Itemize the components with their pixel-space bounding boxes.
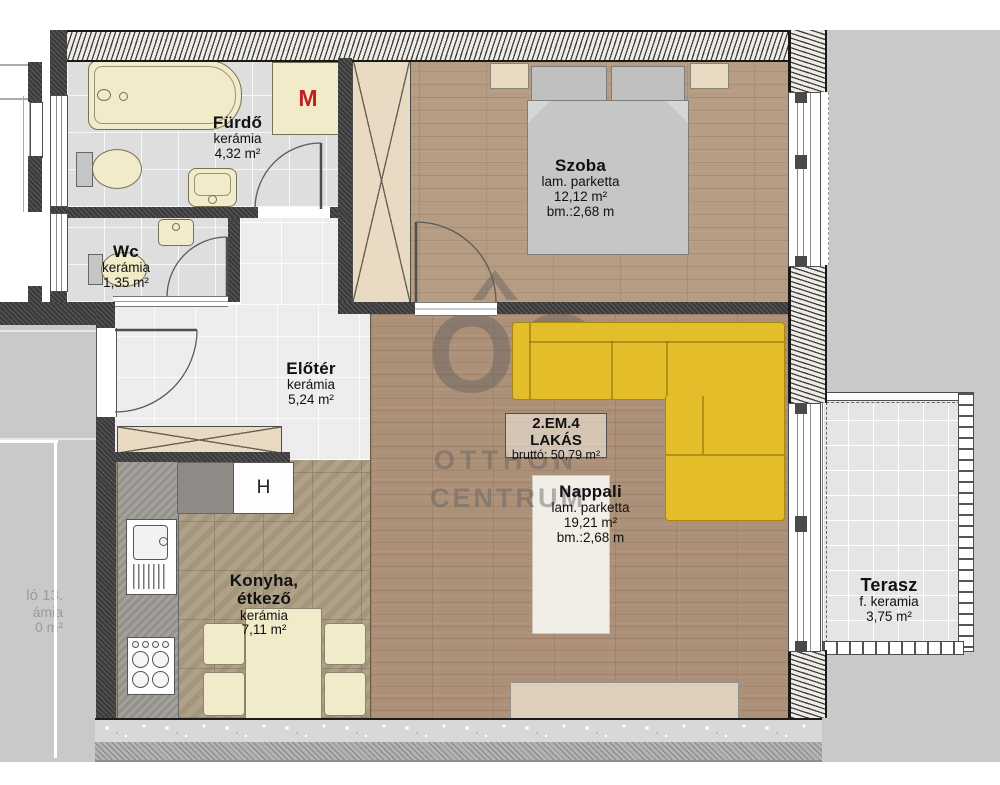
wall-bathroom-bottom [67,207,258,218]
washing-machine-label: M [298,85,317,112]
stove-burner [152,671,169,688]
unit-type: LAKÁS [506,433,606,450]
hall-label: Előtér kerámia 5,24 m² [241,360,381,408]
terrace-bottom-rail [822,641,964,655]
entry-door-opening [96,328,117,417]
wall-bedroom-living-left [338,302,415,314]
exterior-wall-top [52,30,788,62]
room-name: Fürdő [160,114,315,132]
window-frame-joint [795,516,807,532]
room-name: Szoba [508,157,653,175]
stove [127,637,175,695]
room-area: 1,35 m² [66,276,186,291]
bathroom-door-opening [258,207,330,218]
room-name: Terasz [824,576,954,595]
room-floor-type: f. keramia [824,595,954,610]
room-name: Előtér [241,360,381,378]
stove-burner [132,651,149,668]
exterior-wall-right-upper [788,30,827,92]
exterior-wall-bottom-band [95,742,822,762]
room-area: 3,75 m² [824,610,954,625]
wc-sink [158,219,194,246]
wall-bathroom-bottom-stub [330,207,338,218]
unit-gross-area: bruttó: 50,79 m² [506,449,606,463]
wall-bedroom-living-right [497,302,788,314]
window-frame-joint [795,256,807,266]
window-frame-joint [795,93,807,103]
exterior-wall-right-mid [788,265,827,403]
room-name-line2: étkező [189,590,339,608]
sofa-seam [611,341,613,399]
floor-plan: ló 13. ámia 0 m² OC OTTHON CENTRUM [0,0,1000,785]
blanket-fold-left [527,100,551,124]
sideboard [510,682,739,720]
bathroom-window [50,95,68,207]
bedroom-door-threshold [415,302,497,316]
wall-kitchen-left [96,460,116,718]
room-height: bm.:2,68 m [508,205,653,220]
sofa-seam [529,341,784,343]
bed-pillow-right [611,66,685,104]
stove-knob [152,641,159,648]
kitchen-sink-faucet [159,537,168,546]
terrace-sliding-door [788,403,821,652]
terrace-right-railing [958,392,974,652]
wall-wc-right [228,218,240,302]
nightstand-right [690,63,729,89]
window-mullion [803,93,804,266]
bed-pillow-left [531,66,607,104]
kitchen-sink-drainer [133,564,167,589]
bathroom-toilet-tank [76,152,93,187]
neighbor-balcony-edge [0,440,58,443]
nightstand-left [490,63,529,89]
kitchen-sink-unit [126,519,177,595]
wc-threshold [113,296,228,307]
sofa-seam [666,341,668,399]
room-name: Konyha, [189,572,339,590]
sofa-seam [666,454,784,456]
room-area: 12,12 m² [508,190,653,205]
sink-faucet [208,195,217,204]
sofa-main [512,322,785,400]
room-floor-type: kerámia [160,132,315,147]
bedroom-label: Szoba lam. parketta 12,12 m² bm.:2,68 m [508,157,653,219]
window-mullion [56,214,57,291]
room-area: 5,24 m² [241,393,381,408]
neighbor-wall-stub [28,156,42,212]
kitchen-label: Konyha, étkező kerámia 7,11 m² [189,572,339,638]
window-frame-joint [795,404,807,414]
bathroom-sink [188,168,237,207]
stove-knob [162,641,169,648]
neighbor-window [30,102,43,158]
room-name: Wc [66,243,186,261]
dining-chair [203,672,245,716]
neighbor-room-outline [0,330,98,440]
bedroom-window [788,92,821,267]
window-mullion [61,214,62,291]
terrace-top-rail [822,392,968,401]
bathtub-faucet [97,89,111,101]
hall-wardrobe [117,426,282,454]
window-frame-joint [795,155,807,169]
fridge: H [233,462,294,514]
sofa-seam [702,396,704,454]
stove-knob [132,641,139,648]
window-frame-joint [795,641,807,651]
bedroom-wardrobe [352,58,411,303]
room-name: Nappali [518,483,663,501]
exterior-wall-right-lower [788,650,827,718]
dining-chair [324,672,366,716]
room-floor-type: lam. parketta [518,501,663,516]
living-room-label: Nappali lam. parketta 19,21 m² bm.:2,68 … [518,483,663,545]
wc-label: Wc kerámia 1,35 m² [66,243,186,291]
hall-wardrobe-wall [113,452,290,462]
kitchen-counter-top [177,462,235,514]
window-mullion [810,93,811,266]
room-floor-type: kerámia [189,609,339,624]
room-area: 4,32 m² [160,147,315,162]
window-mullion [61,96,62,206]
window-mullion [56,96,57,206]
exterior-wall-bottom [95,718,822,745]
stove-burner [132,671,149,688]
sink-basin [194,173,231,196]
sink-faucet [172,223,180,231]
room-height: bm.:2,68 m [518,531,663,546]
hall-corridor-floor [240,207,338,305]
unit-number: 2.EM.4 [506,416,606,433]
window-mullion [797,93,798,266]
room-area: 19,21 m² [518,516,663,531]
neighbor-wall-stub [28,62,42,102]
sofa-chaise [665,396,785,521]
room-floor-type: lam. parketta [508,175,653,190]
bedroom-window-sill [820,92,829,265]
room-floor-type: kerámia [241,378,381,393]
blanket-fold-right [665,100,689,124]
stove-burner [152,651,169,668]
sofa-seam [529,323,531,399]
wall-hall-left-upper [96,302,115,328]
wall-bathroom-bedroom [338,58,352,302]
unit-info-box: 2.EM.4 LAKÁS bruttó: 50,79 m² [505,413,607,458]
room-area: 7,11 m² [189,623,339,638]
neighbor-balcony-edge [54,443,57,758]
bathtub-drain [119,92,128,101]
bathroom-toilet-bowl [92,149,142,189]
stove-knob [142,641,149,648]
terrace-label: Terasz f. keramia 3,75 m² [824,576,954,625]
room-floor-type: kerámia [66,261,186,276]
fridge-label: H [257,477,271,499]
window-mullion [810,404,811,651]
bathroom-label: Fürdő kerámia 4,32 m² [160,114,315,162]
